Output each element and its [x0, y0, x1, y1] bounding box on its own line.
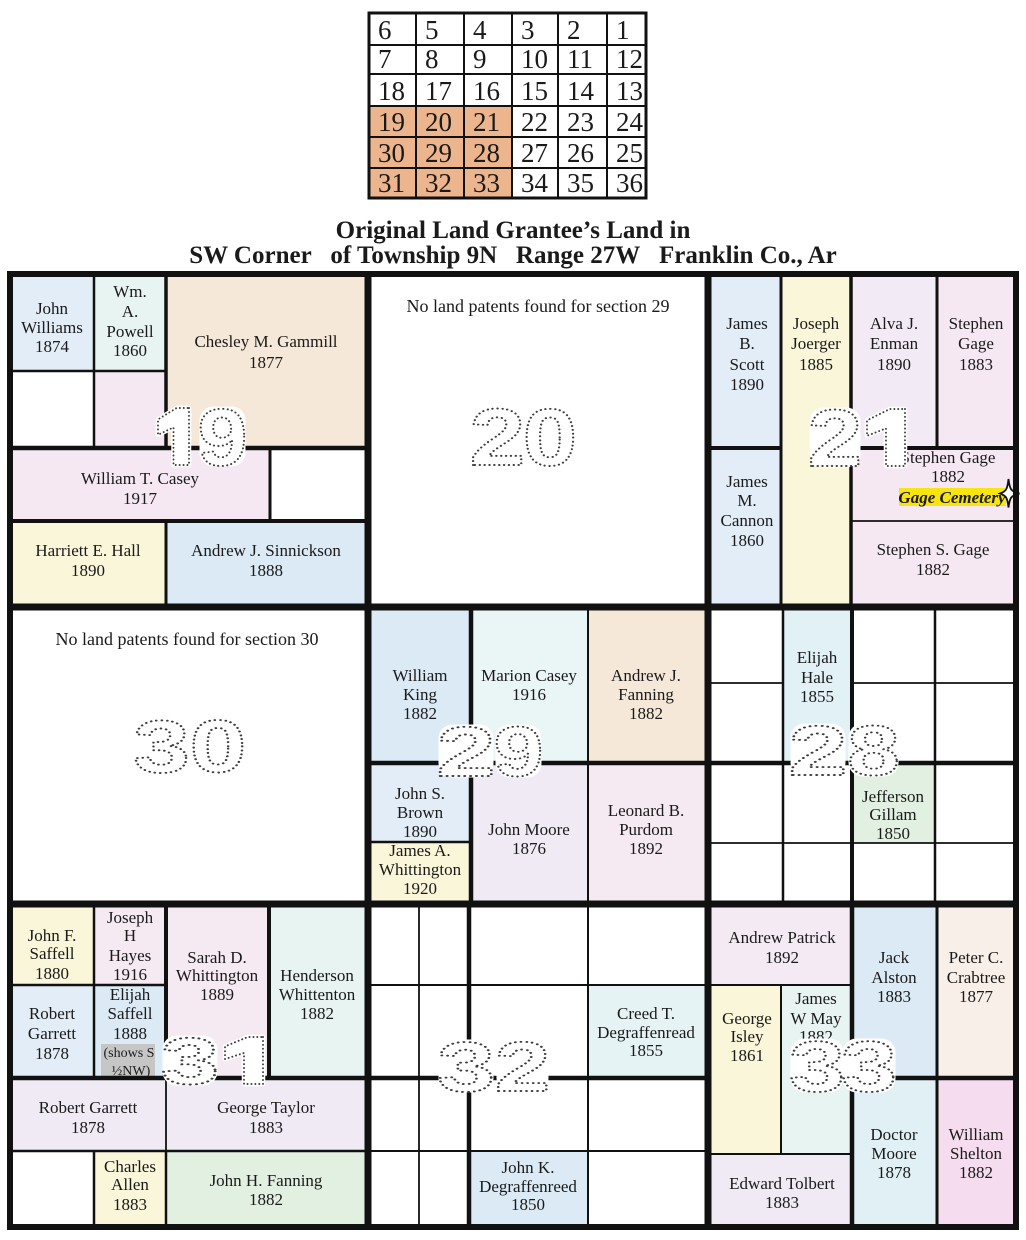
svg-text:No land patents found for sect: No land patents found for section 29: [407, 296, 670, 316]
svg-text:13: 13: [616, 76, 643, 106]
svg-text:22: 22: [521, 107, 548, 137]
svg-text:1: 1: [616, 15, 630, 45]
svg-text:Charles: Charles: [104, 1157, 156, 1176]
svg-text:Cannon: Cannon: [721, 511, 774, 530]
svg-text:3: 3: [161, 1025, 219, 1099]
svg-text:3: 3: [841, 1027, 897, 1107]
svg-text:Purdom: Purdom: [619, 820, 673, 839]
svg-text:3: 3: [789, 1027, 845, 1107]
svg-text:Saffell: Saffell: [107, 1004, 152, 1023]
svg-text:Fanning: Fanning: [618, 685, 674, 704]
svg-text:SW Corner of Township 9N R: SW Corner of Township 9N Range 27W Frank…: [189, 242, 837, 269]
svg-text:23: 23: [567, 107, 594, 137]
svg-text:1883: 1883: [765, 1193, 799, 1212]
svg-text:1920: 1920: [403, 879, 437, 898]
svg-text:1882: 1882: [916, 560, 950, 579]
svg-text:George: George: [722, 1009, 772, 1028]
svg-text:1885: 1885: [799, 355, 833, 374]
svg-text:Jack: Jack: [879, 948, 910, 967]
svg-text:M.: M.: [737, 491, 756, 510]
svg-text:7: 7: [378, 44, 392, 74]
svg-text:Joseph: Joseph: [793, 314, 840, 333]
svg-text:Marion Casey: Marion Casey: [481, 666, 577, 685]
svg-text:1882: 1882: [959, 1163, 993, 1182]
svg-text:1890: 1890: [877, 355, 911, 374]
svg-text:1883: 1883: [113, 1195, 147, 1214]
svg-text:27: 27: [521, 138, 548, 168]
svg-text:33: 33: [473, 168, 500, 198]
svg-text:17: 17: [425, 76, 452, 106]
svg-text:1850: 1850: [511, 1195, 545, 1214]
svg-text:21: 21: [473, 107, 500, 137]
svg-text:1883: 1883: [249, 1118, 283, 1137]
svg-text:Harriett E. Hall: Harriett E. Hall: [35, 541, 141, 560]
svg-text:Leonard B.: Leonard B.: [608, 801, 684, 820]
svg-text:Stephen: Stephen: [949, 314, 1004, 333]
svg-text:Robert: Robert: [29, 1004, 76, 1023]
svg-text:24: 24: [616, 107, 644, 137]
svg-text:Creed T.: Creed T.: [617, 1004, 675, 1023]
svg-text:Andrew Patrick: Andrew Patrick: [728, 928, 836, 947]
svg-text:32: 32: [425, 168, 452, 198]
svg-text:1882: 1882: [300, 1004, 334, 1023]
svg-text:25: 25: [616, 138, 643, 168]
svg-text:1890: 1890: [71, 561, 105, 580]
svg-text:1916: 1916: [113, 965, 147, 984]
svg-text:James A.: James A.: [389, 841, 450, 860]
svg-text:1883: 1883: [877, 987, 911, 1006]
svg-text:Andrew J. Sinnickson: Andrew J. Sinnickson: [191, 541, 341, 560]
svg-text:2: 2: [789, 712, 848, 791]
svg-text:Allen: Allen: [111, 1175, 149, 1194]
svg-text:Gillam: Gillam: [869, 805, 916, 824]
svg-text:1917: 1917: [123, 489, 158, 508]
svg-text:1890: 1890: [403, 822, 437, 841]
svg-text:No land patents found for sect: No land patents found for section 30: [56, 629, 319, 649]
svg-text:John K.: John K.: [502, 1158, 555, 1177]
svg-text:Edward Tolbert: Edward Tolbert: [729, 1174, 835, 1193]
svg-text:Sarah D.: Sarah D.: [187, 948, 246, 967]
svg-text:1878: 1878: [35, 1044, 69, 1063]
svg-text:Joseph: Joseph: [107, 908, 154, 927]
svg-text:1916: 1916: [512, 685, 546, 704]
svg-text:Stephen Gage: Stephen Gage: [901, 448, 996, 467]
svg-text:1888: 1888: [249, 561, 283, 580]
svg-text:Alva J.: Alva J.: [870, 314, 918, 333]
svg-text:Original Land Grantee’s Land i: Original Land Grantee’s Land in: [336, 217, 691, 244]
svg-text:1883: 1883: [959, 355, 993, 374]
svg-text:Whittenton: Whittenton: [279, 985, 356, 1004]
svg-text:1850: 1850: [876, 824, 910, 843]
svg-text:John F.: John F.: [28, 926, 77, 945]
svg-text:Joerger: Joerger: [791, 334, 841, 353]
svg-text:Scott: Scott: [730, 355, 765, 374]
svg-text:34: 34: [521, 168, 549, 198]
svg-text:2: 2: [495, 1028, 551, 1106]
svg-text:Doctor: Doctor: [870, 1125, 918, 1144]
svg-text:Henderson: Henderson: [280, 966, 354, 985]
svg-text:Elijah: Elijah: [110, 985, 151, 1004]
svg-text:1882: 1882: [629, 704, 663, 723]
svg-text:1892: 1892: [765, 948, 799, 967]
svg-text:George Taylor: George Taylor: [217, 1098, 315, 1117]
svg-text:0: 0: [190, 704, 247, 787]
svg-text:6: 6: [378, 15, 392, 45]
svg-text:3: 3: [521, 15, 535, 45]
svg-text:King: King: [403, 685, 438, 704]
svg-text:8: 8: [847, 711, 899, 790]
svg-text:1882: 1882: [249, 1190, 283, 1209]
svg-text:2: 2: [567, 15, 581, 45]
svg-text:Hayes: Hayes: [109, 946, 151, 965]
svg-text:26: 26: [567, 138, 594, 168]
svg-text:Williams: Williams: [21, 318, 83, 337]
svg-text:1877: 1877: [959, 987, 994, 1006]
svg-text:2: 2: [808, 393, 862, 483]
svg-text:29: 29: [425, 138, 452, 168]
svg-text:James: James: [726, 314, 768, 333]
svg-text:1860: 1860: [113, 341, 147, 360]
svg-text:1861: 1861: [730, 1046, 764, 1065]
svg-text:1877: 1877: [249, 353, 284, 372]
svg-text:John: John: [36, 299, 69, 318]
svg-text:B.: B.: [739, 334, 755, 353]
svg-text:1882: 1882: [403, 704, 437, 723]
svg-text:Brown: Brown: [397, 803, 444, 822]
svg-text:Stephen S. Gage: Stephen S. Gage: [877, 540, 990, 559]
svg-text:Alston: Alston: [871, 968, 917, 987]
svg-text:William T. Casey: William T. Casey: [81, 469, 200, 488]
svg-text:(shows S: (shows S: [104, 1046, 155, 1061]
svg-text:Gage: Gage: [958, 334, 994, 353]
svg-text:Hale: Hale: [801, 668, 833, 687]
svg-text:Garrett: Garrett: [28, 1024, 76, 1043]
svg-text:9: 9: [473, 44, 487, 74]
svg-text:8: 8: [425, 44, 439, 74]
svg-text:16: 16: [473, 76, 500, 106]
svg-text:William: William: [948, 1125, 1003, 1144]
svg-text:36: 36: [616, 168, 643, 198]
svg-text:1888: 1888: [113, 1024, 147, 1043]
svg-text:A.: A.: [122, 302, 139, 321]
svg-text:1874: 1874: [35, 337, 70, 356]
svg-text:Chesley M. Gammill: Chesley M. Gammill: [194, 332, 337, 351]
svg-text:28: 28: [473, 138, 500, 168]
svg-text:0: 0: [523, 392, 577, 482]
svg-text:Isley: Isley: [730, 1027, 764, 1046]
svg-text:James: James: [795, 989, 837, 1008]
svg-text:9: 9: [198, 393, 248, 483]
svg-text:Whittington: Whittington: [176, 966, 259, 985]
svg-text:2: 2: [437, 713, 496, 792]
svg-text:Whittington: Whittington: [379, 860, 462, 879]
svg-text:5: 5: [425, 15, 439, 45]
svg-text:1876: 1876: [512, 839, 546, 858]
svg-text:1892: 1892: [629, 839, 663, 858]
svg-text:Shelton: Shelton: [950, 1144, 1002, 1163]
svg-text:Gage Cemetery: Gage Cemetery: [898, 488, 1006, 507]
svg-text:18: 18: [378, 76, 405, 106]
svg-text:Crabtree: Crabtree: [947, 968, 1006, 987]
svg-text:Powell: Powell: [106, 322, 154, 341]
svg-text:1855: 1855: [800, 687, 834, 706]
svg-text:3: 3: [133, 704, 190, 788]
svg-text:Degraffenread: Degraffenread: [597, 1023, 695, 1042]
svg-text:19: 19: [378, 107, 405, 137]
svg-text:30: 30: [378, 138, 405, 168]
svg-text:1855: 1855: [629, 1041, 663, 1060]
svg-text:Moore: Moore: [871, 1144, 916, 1163]
svg-text:1889: 1889: [200, 985, 234, 1004]
svg-text:1880: 1880: [35, 964, 69, 983]
svg-text:1882: 1882: [931, 467, 965, 486]
svg-text:William: William: [392, 666, 447, 685]
svg-text:Degraffenreed: Degraffenreed: [479, 1177, 577, 1196]
svg-text:Elijah: Elijah: [797, 648, 838, 667]
svg-text:Enman: Enman: [870, 334, 919, 353]
svg-text:12: 12: [616, 44, 643, 74]
svg-text:35: 35: [567, 168, 594, 198]
svg-text:W May: W May: [790, 1009, 842, 1028]
svg-text:Robert Garrett: Robert Garrett: [39, 1098, 138, 1117]
svg-text:John Moore: John Moore: [488, 820, 570, 839]
svg-text:9: 9: [494, 713, 544, 792]
svg-text:1878: 1878: [71, 1118, 105, 1137]
svg-text:10: 10: [521, 44, 548, 74]
svg-text:1890: 1890: [730, 375, 764, 394]
svg-text:1878: 1878: [877, 1163, 911, 1182]
svg-text:H: H: [124, 926, 136, 945]
svg-text:Wm.: Wm.: [113, 282, 147, 301]
svg-text:Peter C.: Peter C.: [949, 948, 1004, 967]
svg-text:3: 3: [437, 1028, 495, 1106]
svg-text:11: 11: [567, 44, 593, 74]
svg-text:20: 20: [425, 107, 452, 137]
svg-text:John H. Fanning: John H. Fanning: [210, 1171, 323, 1190]
svg-text:Saffell: Saffell: [29, 944, 74, 963]
svg-text:4: 4: [473, 15, 487, 45]
svg-text:31: 31: [378, 168, 405, 198]
svg-text:James: James: [726, 472, 768, 491]
svg-text:15: 15: [521, 76, 548, 106]
svg-text:1860: 1860: [730, 531, 764, 550]
svg-text:14: 14: [567, 76, 595, 106]
svg-text:Andrew J.: Andrew J.: [611, 666, 681, 685]
svg-text:2: 2: [470, 393, 526, 482]
